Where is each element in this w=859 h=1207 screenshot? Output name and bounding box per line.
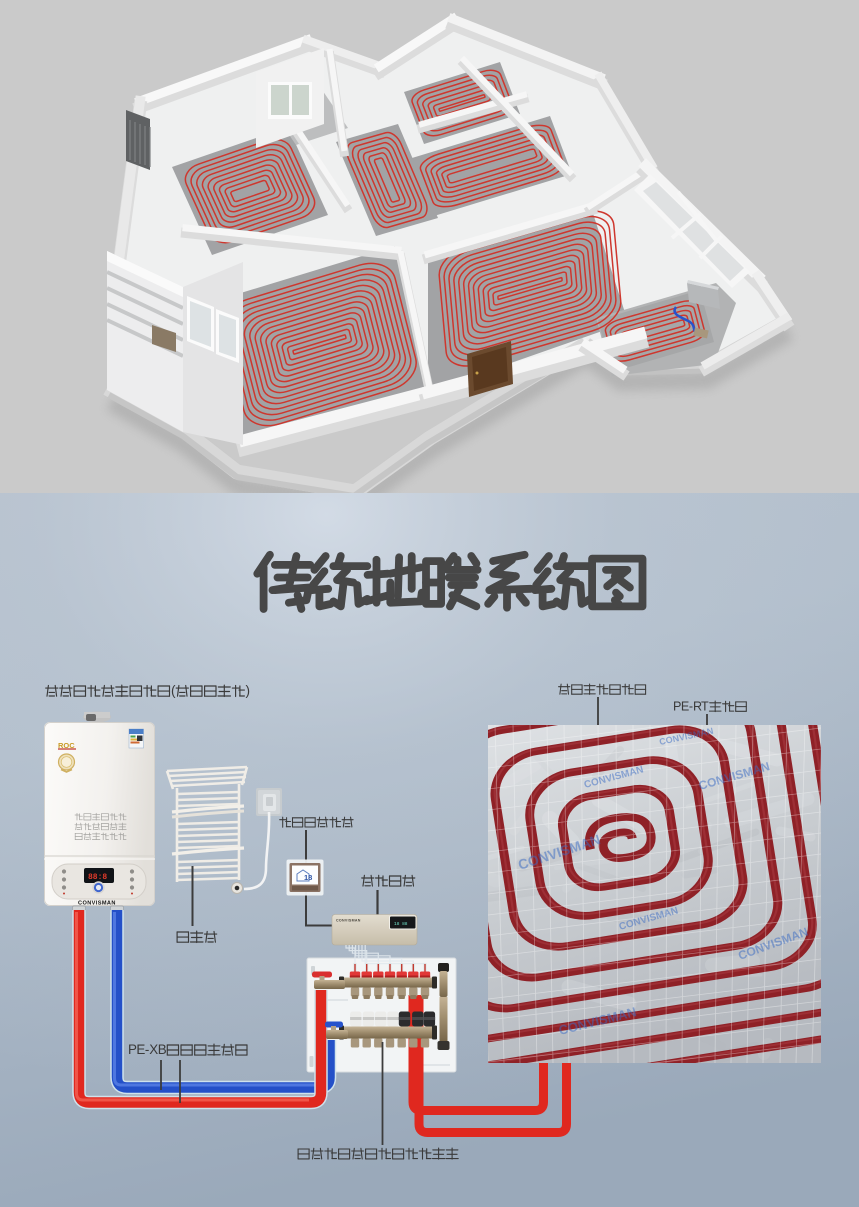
svg-text:B: B — [158, 1042, 167, 1057]
svg-text:T: T — [701, 699, 709, 713]
svg-text:CONVISMAN: CONVISMAN — [78, 901, 116, 907]
svg-text:CONVISMAN: CONVISMAN — [336, 919, 361, 923]
svg-text:18 88: 18 88 — [394, 921, 408, 927]
svg-text:): ) — [246, 683, 251, 698]
svg-text:(: ( — [171, 683, 176, 698]
svg-text:88:8: 88:8 — [88, 873, 107, 882]
svg-text:18: 18 — [304, 873, 312, 882]
